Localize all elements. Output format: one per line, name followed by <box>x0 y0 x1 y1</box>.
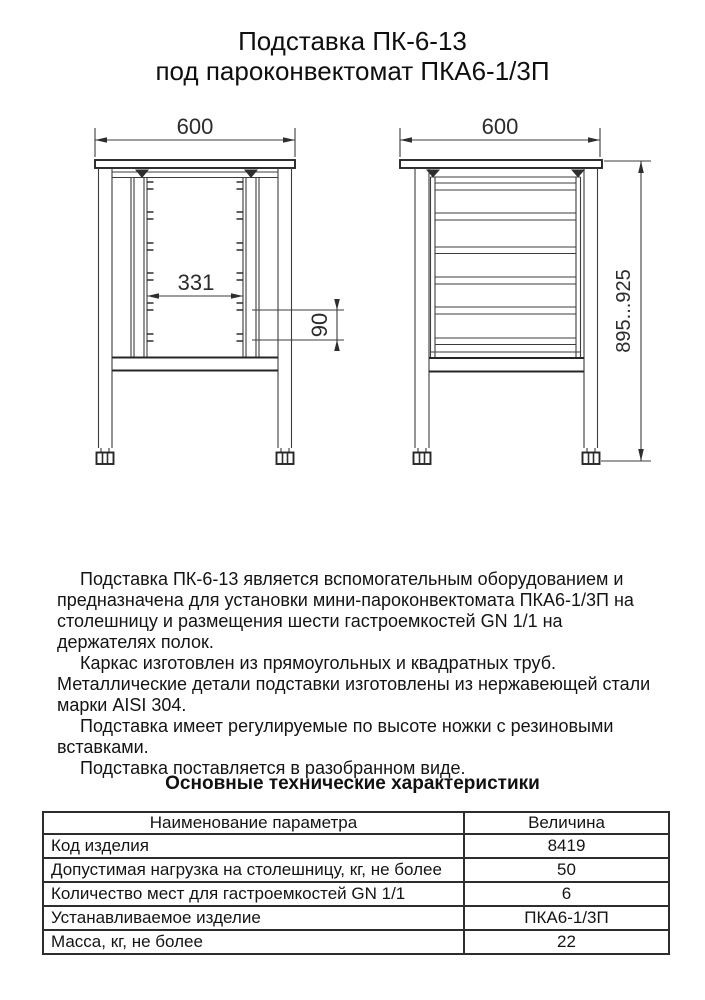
technical-drawings: 600 331 90 <box>0 0 705 490</box>
specs-table: Наименование параметра Величина Код изде… <box>42 811 670 955</box>
front-shelf-rails <box>131 178 259 357</box>
side-right-foot <box>583 448 600 464</box>
spec-value: 22 <box>464 930 669 954</box>
front-legs <box>99 168 292 448</box>
description-paragraph: Подставка ПК-6-13 является вспомогательн… <box>57 569 665 653</box>
side-width-dim-label: 600 <box>482 114 519 139</box>
table-row: Масса, кг, не более 22 <box>43 930 669 954</box>
spec-value: 50 <box>464 858 669 882</box>
side-shelf-rails <box>435 183 576 345</box>
spec-value: 6 <box>464 882 669 906</box>
side-view-drawing: 600 895...925 <box>400 114 651 464</box>
side-tabletop <box>400 160 602 168</box>
side-left-foot <box>414 448 431 464</box>
spec-value: ПКА6-1/3П <box>464 906 669 930</box>
description-paragraph: Подставка имеет регулируемые по высоте н… <box>57 716 665 758</box>
side-crossbar <box>429 358 584 372</box>
table-row: Количество мест для гастроемкостей GN 1/… <box>43 882 669 906</box>
spec-param: Количество мест для гастроемкостей GN 1/… <box>43 882 464 906</box>
specs-header-param: Наименование параметра <box>43 812 464 834</box>
spec-param: Масса, кг, не более <box>43 930 464 954</box>
side-legs <box>415 168 598 448</box>
front-shelf-ticks <box>147 182 243 341</box>
front-rack-width-dim-label: 331 <box>178 270 215 295</box>
front-tabletop <box>95 160 295 168</box>
spec-value: 8419 <box>464 834 669 858</box>
description-text: Подставка ПК-6-13 является вспомогательн… <box>57 569 665 779</box>
table-row: Допустимая нагрузка на столешницу, кг, н… <box>43 858 669 882</box>
table-row: Устанавливаемое изделие ПКА6-1/3П <box>43 906 669 930</box>
description-paragraph: Каркас изготовлен из прямоугольных и ква… <box>57 653 665 716</box>
front-right-foot <box>277 448 294 464</box>
side-height-dim-label: 895...925 <box>613 269 635 352</box>
specs-header-row: Наименование параметра Величина <box>43 812 669 834</box>
front-view-drawing: 600 331 90 <box>95 114 344 464</box>
front-shelf-pitch-dim-label: 90 <box>307 313 332 337</box>
spec-param: Допустимая нагрузка на столешницу, кг, н… <box>43 858 464 882</box>
front-left-foot <box>97 448 114 464</box>
specs-header-value: Величина <box>464 812 669 834</box>
document-page: Подставка ПК-6-13 под пароконвектомат ПК… <box>0 0 705 1000</box>
spec-param: Устанавливаемое изделие <box>43 906 464 930</box>
front-crossbar <box>112 358 278 371</box>
front-width-dim-label: 600 <box>177 114 214 139</box>
side-rack-frame <box>431 177 581 358</box>
table-row: Код изделия 8419 <box>43 834 669 858</box>
specs-heading: Основные технические характеристики <box>0 773 705 795</box>
spec-param: Код изделия <box>43 834 464 858</box>
